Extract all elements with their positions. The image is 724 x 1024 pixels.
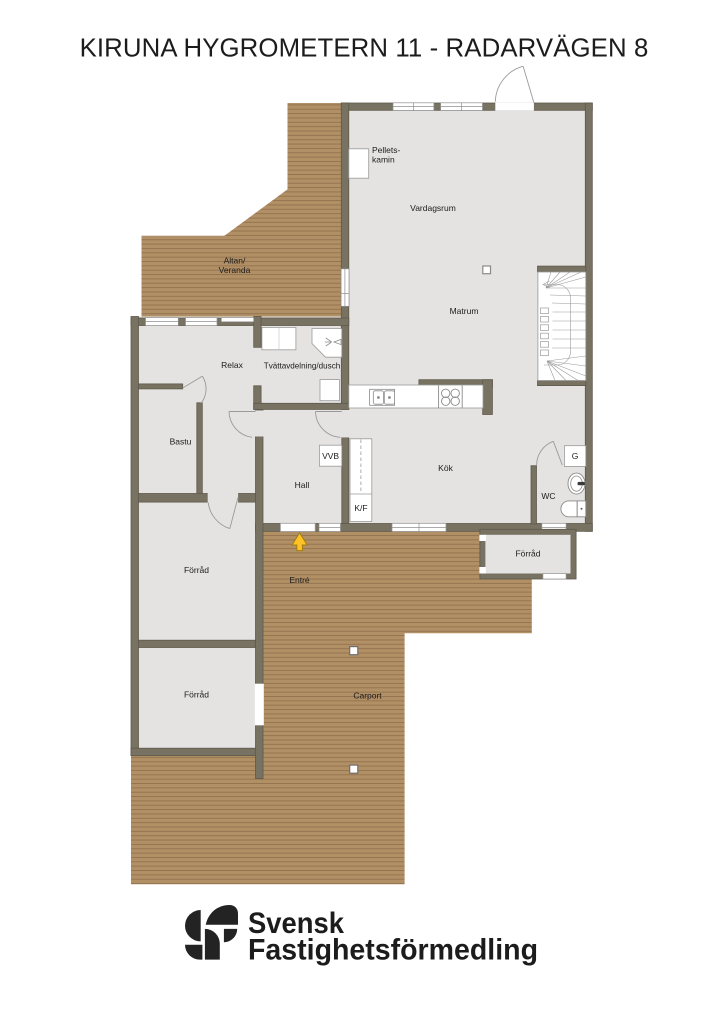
svg-text:Tvättavdelning/dusch: Tvättavdelning/dusch — [264, 362, 341, 371]
svg-text:Pellets-: Pellets- — [372, 145, 401, 155]
svg-text:Relax: Relax — [221, 360, 243, 370]
svg-text:Entré: Entré — [289, 575, 310, 585]
svg-text:G: G — [572, 451, 579, 461]
svg-text:Bastu: Bastu — [170, 437, 192, 447]
svg-text:Hall: Hall — [295, 480, 310, 490]
svg-text:Altan/: Altan/ — [224, 255, 246, 265]
svg-text:Kök: Kök — [438, 463, 453, 473]
svg-text:Matrum: Matrum — [450, 306, 479, 316]
svg-text:Fastighetsförmedling: Fastighetsförmedling — [248, 934, 538, 967]
svg-text:VVB: VVB — [322, 451, 339, 461]
svg-text:WC: WC — [541, 491, 555, 501]
svg-text:Vardagsrum: Vardagsrum — [410, 203, 456, 213]
svg-text:Veranda: Veranda — [219, 265, 251, 275]
svg-text:Carport: Carport — [353, 691, 382, 701]
svg-text:K/F: K/F — [354, 503, 367, 513]
svg-text:Förråd: Förråd — [184, 690, 209, 700]
svg-text:Förråd: Förråd — [515, 549, 540, 559]
svg-text:KIRUNA HYGROMETERN 11 - RADARV: KIRUNA HYGROMETERN 11 - RADARVÄGEN 8 — [80, 35, 649, 63]
svg-text:Förråd: Förråd — [184, 565, 209, 575]
svg-text:kamin: kamin — [372, 154, 395, 164]
